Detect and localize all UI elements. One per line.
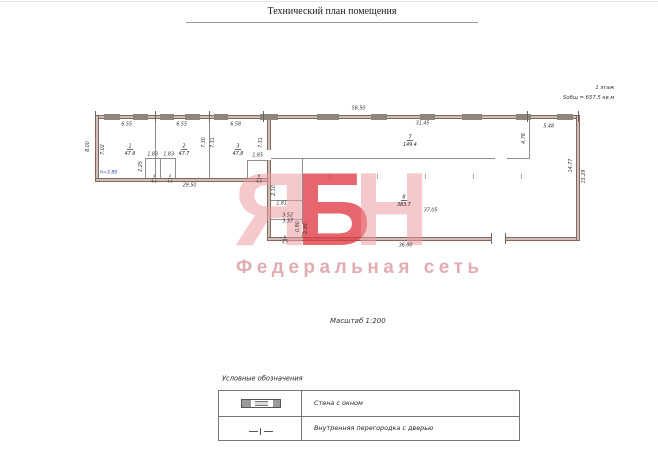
dim-wc2-width: 1.83 <box>163 152 174 158</box>
window-segment <box>462 114 482 120</box>
partition-with-door-icon-part <box>260 428 261 435</box>
window-segment <box>317 114 339 120</box>
dim-right-outer: 15.29 <box>581 170 587 184</box>
dim-room1-width: 6.55 <box>121 122 132 128</box>
room-area: 4.1 <box>163 180 177 184</box>
window-segment <box>371 114 387 120</box>
legend-row-divider <box>219 416 519 417</box>
dim-left-inner: 7.02 <box>100 144 106 155</box>
watermark-letter-n: Н <box>354 158 429 262</box>
room-area: 4.7 <box>278 241 292 245</box>
dim-room3-width: 6.58 <box>230 122 241 128</box>
room-label-1: 1 47.9 <box>120 136 139 157</box>
room-label-3: 3 47.8 <box>228 136 247 157</box>
scale-label: Масштаб 1:200 <box>330 317 386 325</box>
partition-room2-3 <box>209 119 210 178</box>
dim-room7-wall: 4.78 <box>521 133 527 144</box>
height-note: h=3.80 <box>100 170 117 175</box>
column-mark <box>521 174 522 179</box>
wall-with-window-icon-part <box>242 400 251 407</box>
document-page: Технический план помещения 1 этаж Sобщ =… <box>0 0 658 465</box>
room-number: 8 <box>401 195 407 201</box>
window-segment <box>185 114 200 120</box>
window-segment <box>557 114 573 120</box>
floor-info: 1 этаж Sобщ = 657.5 кв.м <box>563 83 614 102</box>
legend-column-divider <box>301 391 302 440</box>
room-area: 4.2 <box>252 180 266 184</box>
title-underline <box>186 22 478 23</box>
room-area: 47.7 <box>174 151 193 157</box>
legend-row2-label: Внутренняя перегородка с дверью <box>314 424 433 431</box>
dim-room-height-a: 7.30 <box>201 137 207 148</box>
dim-room2-width: 6.55 <box>176 122 187 128</box>
dim-top-right: 5.48 <box>543 124 554 130</box>
dim-total-top: 58.50 <box>352 106 366 112</box>
dim-right-inner: 14.77 <box>568 159 574 173</box>
room-number: 2 <box>181 144 187 150</box>
dim-room-height-b: 7.31 <box>210 137 216 148</box>
dim-wc-depth: 2.25 <box>138 161 144 172</box>
room-label-5: 5 4.1 <box>163 168 177 184</box>
door-tick <box>505 233 506 244</box>
window-segment <box>516 114 531 120</box>
dim-tick <box>95 111 96 122</box>
wall-left <box>95 115 99 182</box>
partition-with-door-icon <box>249 427 273 436</box>
room-area: 47.9 <box>120 151 139 157</box>
room-area: 4.1 <box>147 180 161 184</box>
dim-bottom-right: 36.00 <box>399 243 413 249</box>
dim-middle-2: 3.52 <box>282 213 293 219</box>
room-number: 5 <box>168 175 173 179</box>
legend-table: Стена с окном Внутренняя перегородка с д… <box>218 390 520 441</box>
room-number: 4 <box>152 175 157 179</box>
window-segment <box>160 114 174 120</box>
partition-with-door-icon-part <box>249 431 258 432</box>
dim-middle-1: 1.81 <box>276 201 287 207</box>
dim-room7-width: 31.45 <box>416 121 430 127</box>
partition-with-door-icon-part <box>264 431 273 432</box>
page-top-rule <box>0 1 658 2</box>
dim-left-outer: 8.00 <box>85 141 91 152</box>
dim-middle-5: 2.95 <box>303 223 309 234</box>
room-label-2: 2 47.7 <box>174 136 193 157</box>
room-number: 6 <box>257 175 262 179</box>
door-opening-room7 <box>495 156 507 160</box>
room-area: 149.4 <box>400 142 419 148</box>
dim-middle-4: 0.90 <box>295 221 301 232</box>
dim-tick <box>209 111 210 122</box>
room-area: 383.7 <box>394 202 413 208</box>
dim-wc3-width: 1.85 <box>252 153 263 159</box>
wall-right <box>576 115 580 241</box>
window-segment <box>104 114 120 120</box>
room-label-4: 4 4.1 <box>147 168 161 184</box>
wall-with-window-icon-part <box>273 400 280 407</box>
dim-room-height-c: 7.31 <box>258 137 264 148</box>
partition-room7-right <box>529 119 530 158</box>
room-number: 7 <box>407 135 413 141</box>
watermark-subtitle: Федеральная сеть <box>236 257 484 279</box>
column-mark <box>473 174 474 179</box>
window-segment <box>214 114 228 120</box>
dim-tick <box>527 111 528 122</box>
dim-tick <box>263 111 264 122</box>
wall-with-window-icon <box>241 399 281 408</box>
wall-with-window-icon-part <box>255 401 268 406</box>
dim-mid-width: 37.05 <box>424 208 438 214</box>
dim-tick <box>155 111 156 122</box>
room-label-9: 9 4.7 <box>278 229 292 245</box>
dim-wc1-width: 1.83 <box>147 152 158 158</box>
floor-label: 1 этаж <box>563 83 614 93</box>
room-area: 47.8 <box>228 151 247 157</box>
room-label-6: 6 4.2 <box>252 168 266 184</box>
window-segment <box>133 114 148 120</box>
dim-bottom-left: 29.50 <box>183 183 197 189</box>
room-label-8: 8 383.7 <box>394 187 413 208</box>
room-label-7: 7 149.4 <box>400 127 419 148</box>
room-number: 3 <box>235 144 241 150</box>
dim-middle-3: 3.37 <box>282 219 293 225</box>
door-tick <box>491 233 492 244</box>
door-opening-bottom <box>491 236 506 242</box>
dim-tick <box>578 111 579 122</box>
room-number: 1 <box>127 144 133 150</box>
dim-middle-6: 2.10 <box>271 185 277 196</box>
page-title: Технический план помещения <box>186 6 478 17</box>
legend-row1-label: Стена с окном <box>314 399 363 406</box>
total-area-label: Sобщ = 657.5 кв.м <box>563 93 614 103</box>
window-segment <box>420 114 435 120</box>
legend-title: Условные обозначения <box>222 375 303 383</box>
room-number: 9 <box>283 236 288 240</box>
